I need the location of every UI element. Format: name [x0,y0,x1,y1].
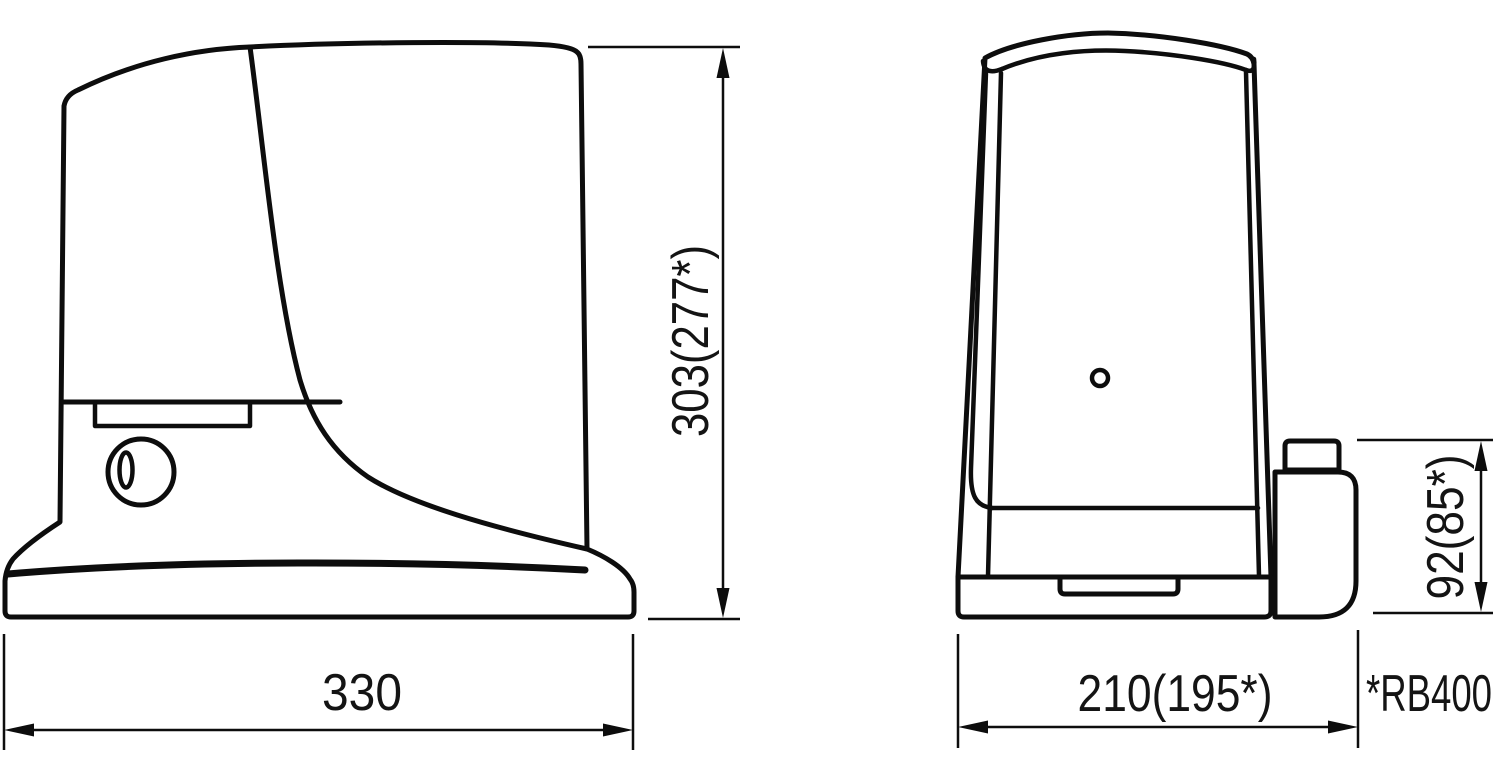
release-height-label: 92(85*) [1417,455,1475,600]
mounting-hole [1092,370,1108,386]
dimension-drawing-canvas: 303(277*) 330 210(195*) 92(85*) *RB400 [0,0,1500,770]
side-view-drawing [5,43,634,617]
side-width-label: 330 [322,664,402,722]
model-note: *RB400 [1366,665,1492,723]
drawing-page: 303(277*) 330 210(195*) 92(85*) *RB400 [0,0,1500,770]
side-cover-outline [5,43,634,617]
release-housing [1275,472,1356,617]
front-cover-outline [958,33,1271,577]
front-width-label: 210(195*) [1078,665,1273,723]
release-lever-box [1285,441,1339,470]
side-height-label: 303(277*) [662,245,720,437]
